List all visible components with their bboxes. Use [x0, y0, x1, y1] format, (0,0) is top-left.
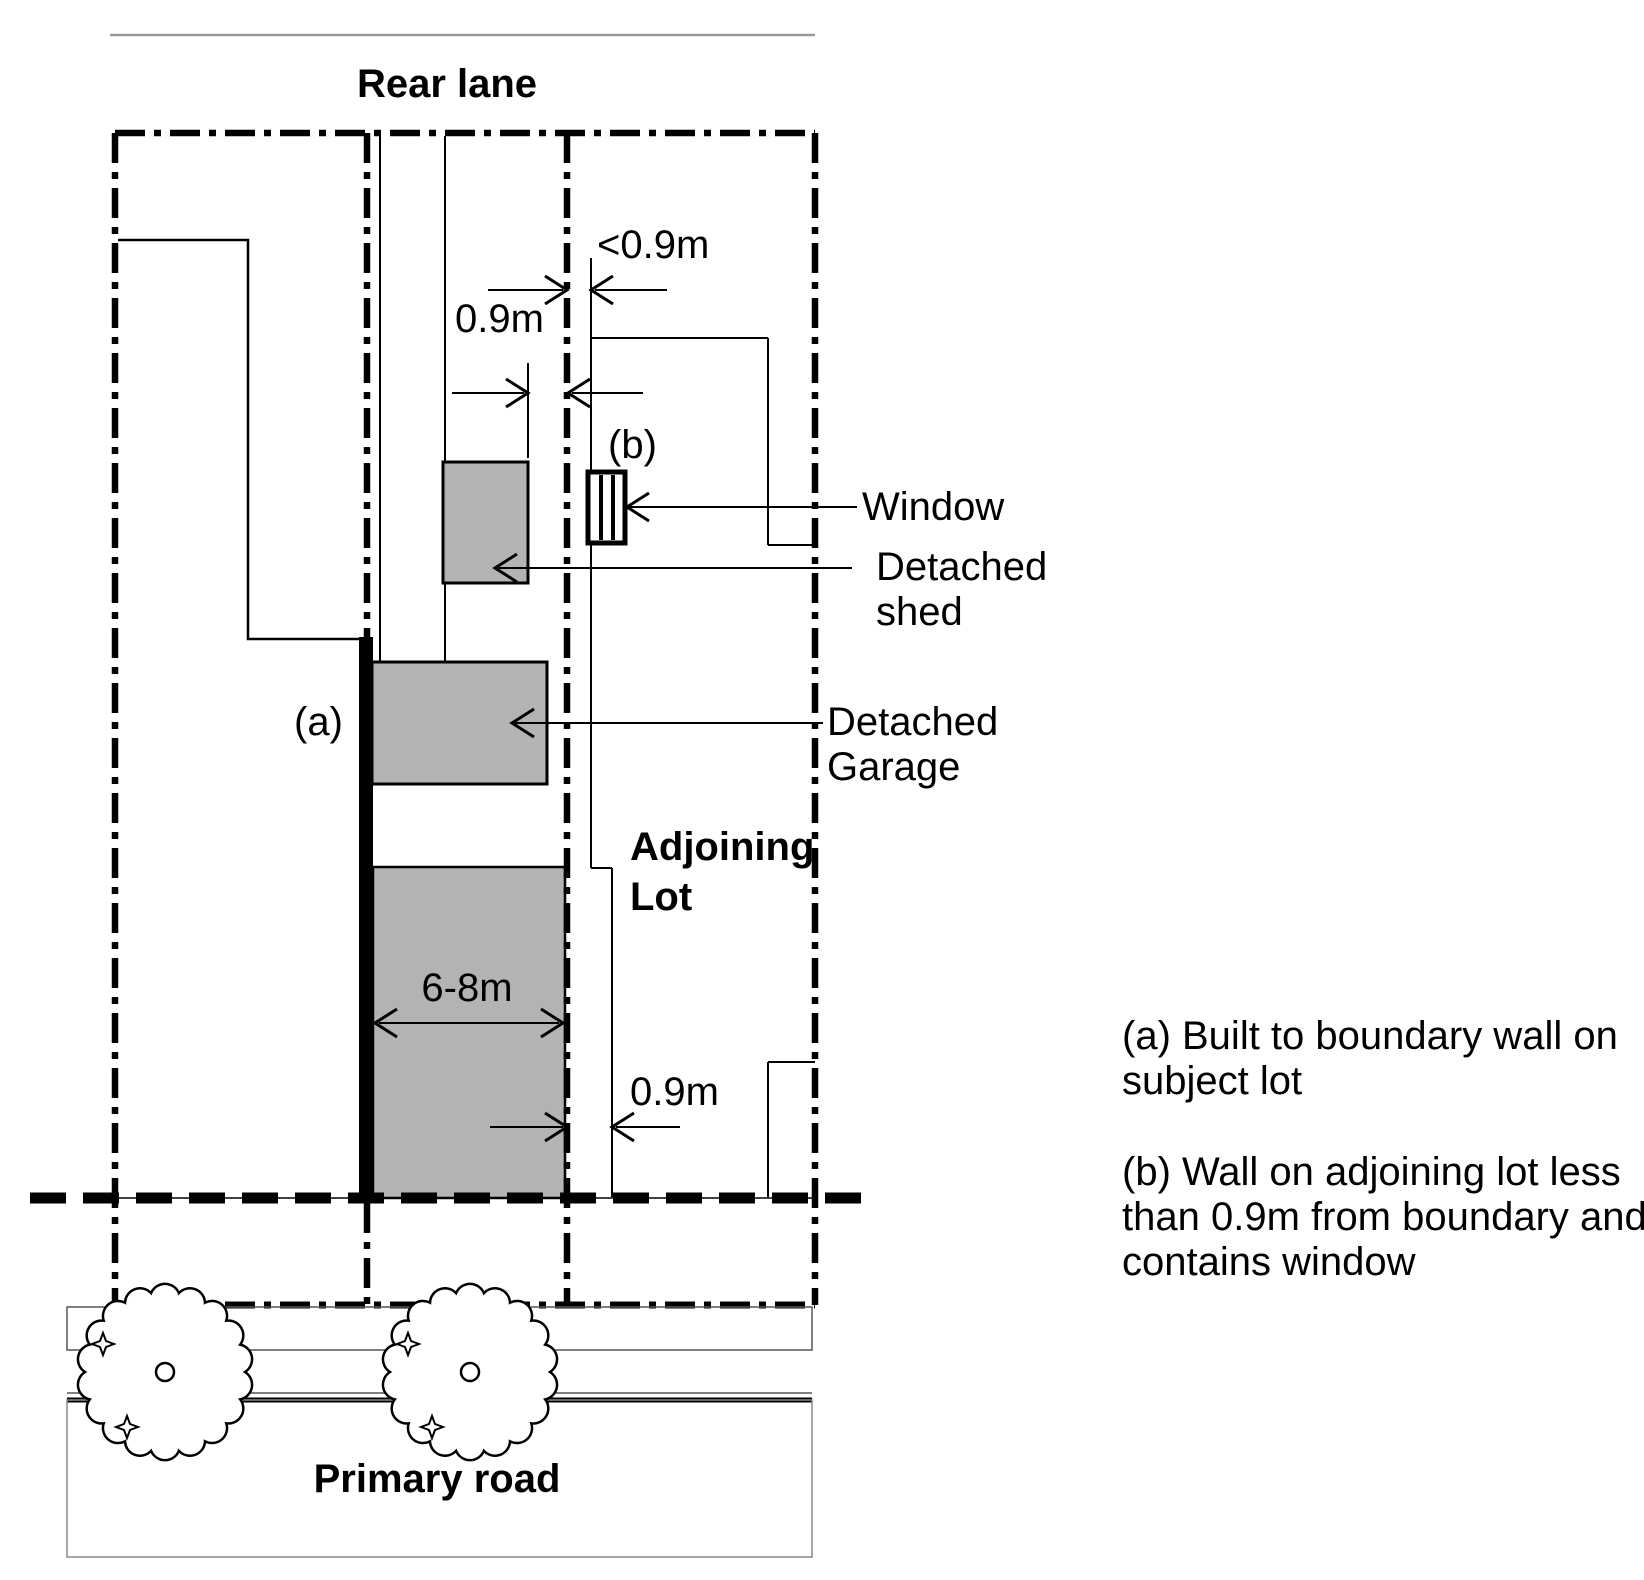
legend-a-line2: subject lot: [1122, 1059, 1302, 1103]
dim-shed-setback-text: 0.9m: [455, 297, 544, 341]
site-plan-page: Rear lane <0.9m: [0, 0, 1644, 1580]
left-neighbour-house-outline: [118, 240, 360, 639]
legend-b-line1: (b) Wall on adjoining lot less: [1122, 1150, 1621, 1194]
window-symbol: [588, 472, 625, 543]
dim-window-wall-setback: <0.9m: [488, 223, 709, 304]
detached-shed: [443, 462, 528, 583]
detached-garage-callout: Detached Garage: [512, 700, 998, 789]
tree-trunk: [461, 1363, 479, 1381]
adjoining-lot-label-line1: Adjoining: [630, 825, 814, 869]
window-label: Window: [862, 485, 1004, 529]
marker-b-label: (b): [608, 423, 657, 467]
detached-shed-label-line2: shed: [876, 590, 963, 634]
window-frame: [588, 472, 625, 543]
tree-icon: [383, 1284, 557, 1460]
legend-a-line1: (a) Built to boundary wall on: [1122, 1014, 1618, 1058]
legend-b-line2: than 0.9m from boundary and: [1122, 1195, 1644, 1239]
dim-window-wall-setback-text: <0.9m: [597, 223, 709, 267]
adjoining-lot-label-line2: Lot: [630, 875, 692, 919]
detached-shed-label-line1: Detached: [876, 545, 1047, 589]
marker-a-label: (a): [294, 700, 343, 744]
legend-b-line3: contains window: [1122, 1240, 1416, 1284]
dim-adjoining-setback-text: 0.9m: [630, 1070, 719, 1114]
primary-road-label: Primary road: [314, 1457, 561, 1501]
rear-lane-label: Rear lane: [357, 62, 537, 106]
street-trees: [78, 1284, 557, 1460]
site-plan-diagram: Rear lane <0.9m: [0, 0, 1644, 1580]
built-to-boundary-wall: [359, 637, 373, 1200]
tree-trunk: [156, 1363, 174, 1381]
legend-notes: (a) Built to boundary wall on subject lo…: [1122, 1014, 1644, 1284]
subject-dwelling: [373, 867, 565, 1198]
detached-garage-label-line2: Garage: [827, 745, 960, 789]
detached-shed-callout: Detached shed: [495, 545, 1047, 634]
tree-icon: [78, 1284, 252, 1460]
dim-dwelling-width-text: 6-8m: [421, 966, 512, 1010]
adjoining-house-outline: [591, 258, 815, 1197]
detached-garage-label-line1: Detached: [827, 700, 998, 744]
